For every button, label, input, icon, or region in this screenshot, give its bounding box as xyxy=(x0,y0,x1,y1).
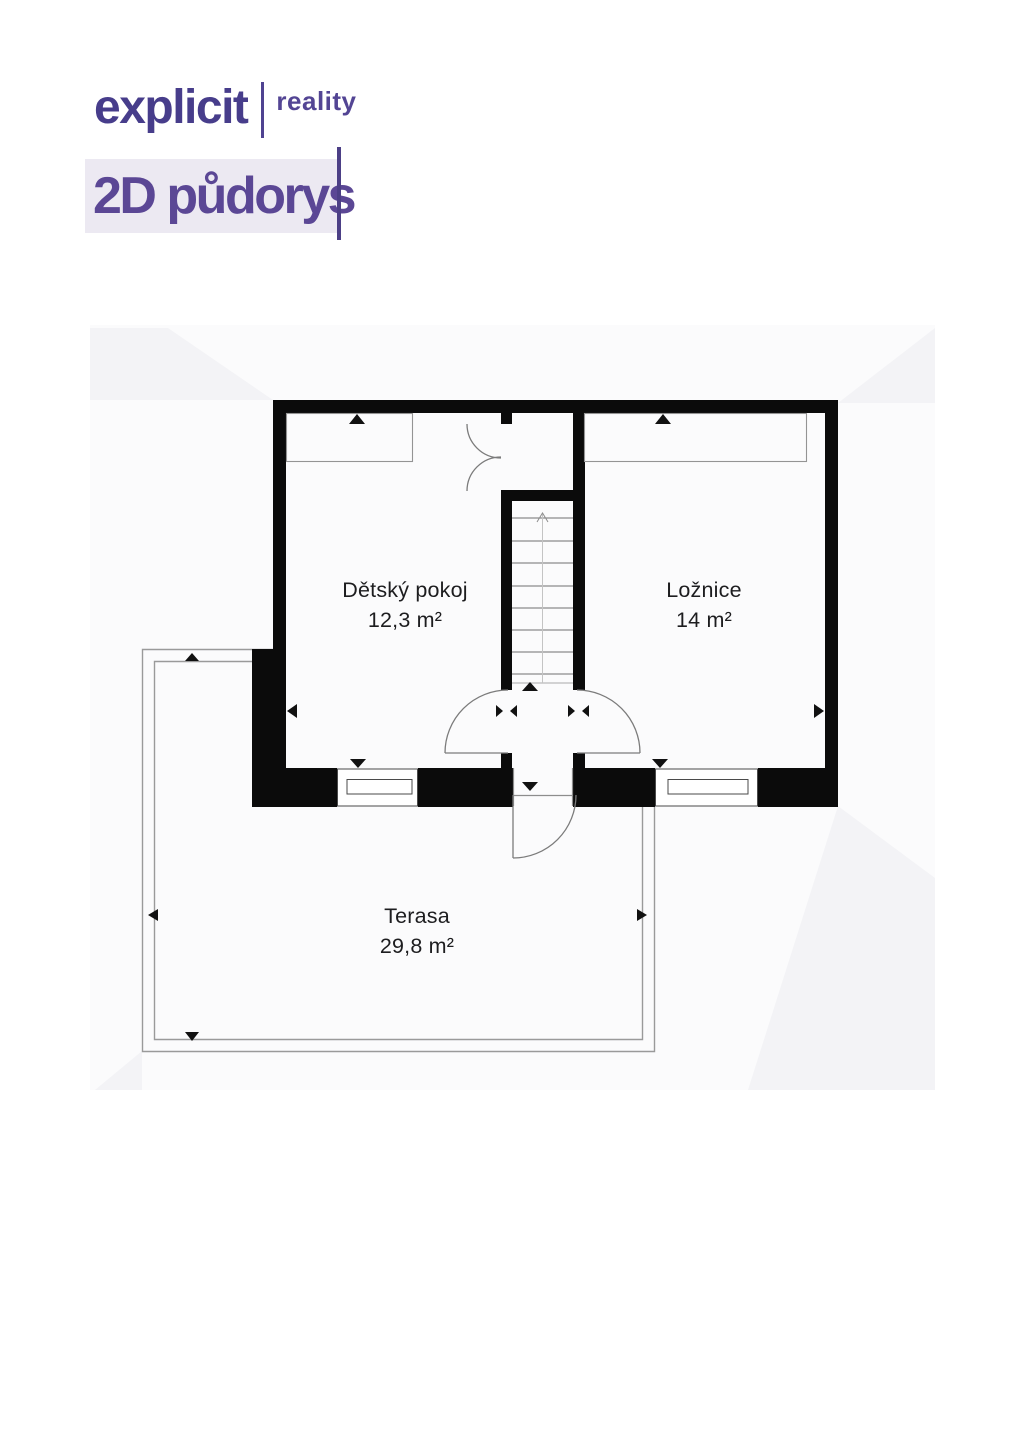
window-left xyxy=(338,769,418,806)
text-cursor xyxy=(337,147,341,240)
door-bedroom xyxy=(577,690,640,753)
marker-door-right-b xyxy=(582,705,589,717)
wardrobe-childrens-room xyxy=(287,414,413,462)
room-label-childrens-room: Dětský pokoj 12,3 m² xyxy=(342,575,467,635)
marker-window-left xyxy=(350,759,366,768)
marker-terrace-left xyxy=(148,909,158,921)
floorplan-image: Dětský pokoj 12,3 m² Ložnice 14 m² Teras… xyxy=(90,325,935,1090)
page-title-box: 2D půdorys xyxy=(85,159,341,233)
brand-logo: explicit reality xyxy=(94,78,357,142)
marker-window-right xyxy=(652,759,668,768)
brand-logo-primary: explicit xyxy=(94,78,247,132)
room-area: 14 m² xyxy=(666,605,742,635)
marker-top-right xyxy=(655,414,671,424)
marker-door-left-b xyxy=(510,705,517,717)
room-name: Ložnice xyxy=(666,575,742,605)
brand-logo-secondary: reality xyxy=(276,78,356,114)
windows xyxy=(338,769,758,806)
window-right xyxy=(656,769,758,806)
terrace-door-frame xyxy=(513,768,573,806)
brand-logo-divider xyxy=(261,82,264,138)
floorplan-drawing xyxy=(90,325,935,1090)
closet-double-door xyxy=(467,424,501,491)
room-name: Dětský pokoj xyxy=(342,575,467,605)
room-name: Terasa xyxy=(380,901,454,931)
marker-top-left xyxy=(349,414,365,424)
terrace-railing xyxy=(143,650,655,1052)
room-area: 29,8 m² xyxy=(380,931,454,961)
marker-terrace-top xyxy=(185,653,199,661)
door-childrens-room xyxy=(445,690,508,753)
room-area: 12,3 m² xyxy=(342,605,467,635)
furniture xyxy=(287,414,807,462)
door-terrace xyxy=(513,795,576,858)
marker-right-wall xyxy=(814,704,824,718)
room-label-bedroom: Ložnice 14 m² xyxy=(666,575,742,635)
marker-left-wall xyxy=(287,704,297,718)
staircase xyxy=(512,513,573,683)
plan-markers xyxy=(148,414,824,1041)
marker-door-right-a xyxy=(568,705,575,717)
marker-door-left-a xyxy=(496,705,503,717)
page-title: 2D půdorys xyxy=(85,166,354,226)
marker-terrace-door xyxy=(522,782,538,791)
wardrobe-bedroom xyxy=(585,414,807,462)
room-label-terrace: Terasa 29,8 m² xyxy=(380,901,454,961)
